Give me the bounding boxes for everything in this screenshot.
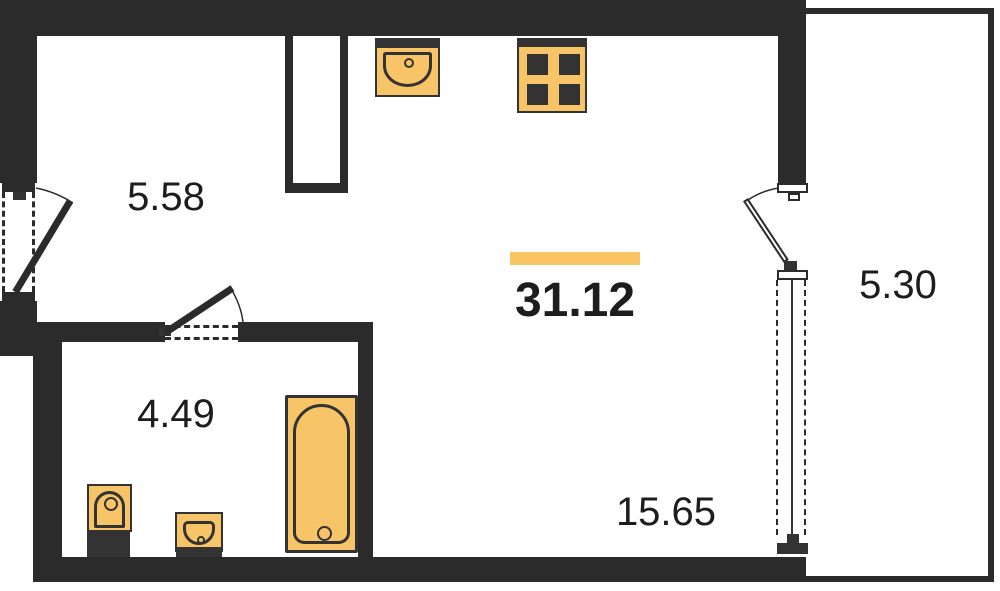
balcony-window-dashed-right xyxy=(804,280,806,535)
bathroom-wall-right xyxy=(358,342,373,557)
shaft-wall-right xyxy=(340,36,348,193)
bathroom-wall-left xyxy=(33,342,62,557)
stove-burner-1 xyxy=(527,54,548,75)
balcony-area-label: 5.30 xyxy=(840,265,956,305)
bathroom-sink-drain xyxy=(197,536,205,544)
bathtub-icon xyxy=(285,395,358,553)
balcony-window-dashed-left xyxy=(776,280,778,535)
bathroom-door-dashed-bottom xyxy=(165,337,238,340)
wall-main-right xyxy=(778,0,806,183)
bathtub-drain xyxy=(317,526,332,541)
bathroom-door-swing-arc xyxy=(231,289,243,322)
stove-burner-4 xyxy=(559,84,580,105)
total-area-label: 31.12 xyxy=(495,277,655,325)
stove-counter-edge xyxy=(519,40,585,47)
shaft-wall-left xyxy=(285,36,293,193)
bathroom-sink-base xyxy=(176,547,222,557)
toilet-icon xyxy=(87,484,132,532)
wall-left-upper xyxy=(0,0,37,183)
entry-door-stop xyxy=(13,192,26,200)
bathroom-door-jamb-right xyxy=(238,322,248,342)
balcony-door-sill-top xyxy=(777,183,808,193)
stove-burner-3 xyxy=(527,84,548,105)
kitchen-sink-faucet xyxy=(404,58,414,68)
kitchen-sink-counter-edge xyxy=(377,40,438,48)
balcony-door-stop xyxy=(788,193,800,201)
wall-top xyxy=(0,0,778,36)
living-area-label: 15.65 xyxy=(600,492,732,532)
balcony-window-sill-bottom xyxy=(777,543,808,554)
bathroom-wall-top-left xyxy=(37,322,155,342)
entry-door-dashed-right xyxy=(32,192,35,292)
bathroom-sink-icon xyxy=(175,512,223,552)
toilet-tank xyxy=(87,532,130,557)
entry-door-leaf xyxy=(12,199,73,293)
entry-door-jamb-top xyxy=(2,183,35,192)
kitchen-sink-icon xyxy=(375,38,440,97)
hall-area-label: 5.58 xyxy=(106,177,226,217)
total-area-highlight xyxy=(510,252,640,265)
bathroom-area-label: 4.49 xyxy=(116,394,236,434)
bathroom-wall-top-right xyxy=(248,322,373,342)
bathroom-door-leaf xyxy=(163,285,234,336)
entry-door-dashed-left xyxy=(2,192,5,292)
wall-bottom xyxy=(33,557,806,582)
balcony-window-glass-line xyxy=(791,280,793,537)
floor-plan: 5.58 4.49 15.65 5.30 31.12 xyxy=(0,0,1000,591)
bathtub-inner-outline xyxy=(293,404,350,544)
balcony-window-sill-mid xyxy=(777,270,808,280)
stove-icon xyxy=(517,38,587,113)
wall-left-mid xyxy=(0,301,37,356)
stove-burner-2 xyxy=(559,54,580,75)
balcony-door-swing-arc xyxy=(748,188,779,200)
shaft-wall-bottom xyxy=(285,183,348,193)
toilet-flush xyxy=(104,497,118,511)
balcony-door-leaf xyxy=(743,198,789,263)
